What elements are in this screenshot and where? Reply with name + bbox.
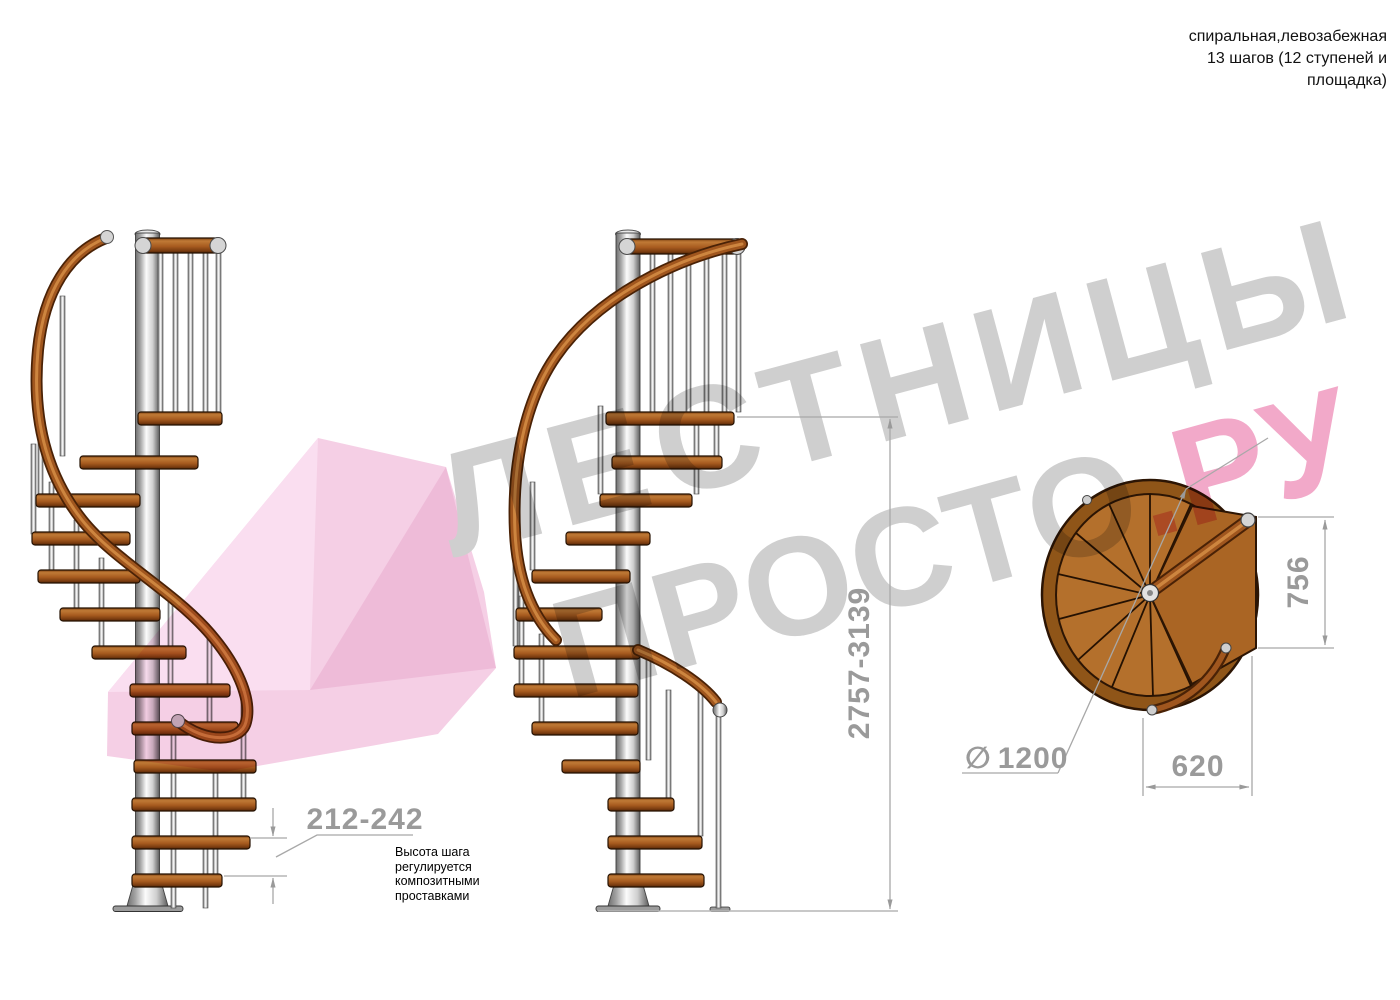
diameter-value: ∅1200 [965,742,1068,775]
note-line4: проставками [395,889,480,904]
diameter-symbol: ∅ [965,742,992,775]
drawing-canvas: ЛЕСТНИЦЫ ПРОСТО.РУ [0,0,1400,1000]
diameter-number: 1200 [998,742,1069,775]
product-title-line1: спиральная,левозабежная [1189,26,1387,48]
product-title: спиральная,левозабежная 13 шагов (12 сту… [1189,26,1387,92]
step-height-value: 212-242 [306,803,423,836]
platform-depth-value: 756 [1282,555,1315,608]
dimension-annotations: 212-242 2757-3139 756 620 ∅1200 [0,0,1400,1000]
total-height-value: 2757-3139 [843,587,876,739]
note-line3: композитными [395,874,480,889]
dim-diameter-leader [962,438,1268,773]
note-line1: Высота шага [395,845,480,860]
step-width-value: 620 [1171,750,1224,783]
product-title-line3: площадка) [1189,70,1387,92]
step-height-note: Высота шага регулируется композитными пр… [395,845,480,903]
product-title-line2: 13 шагов (12 ступеней и [1189,48,1387,70]
note-line2: регулируется [395,860,480,875]
